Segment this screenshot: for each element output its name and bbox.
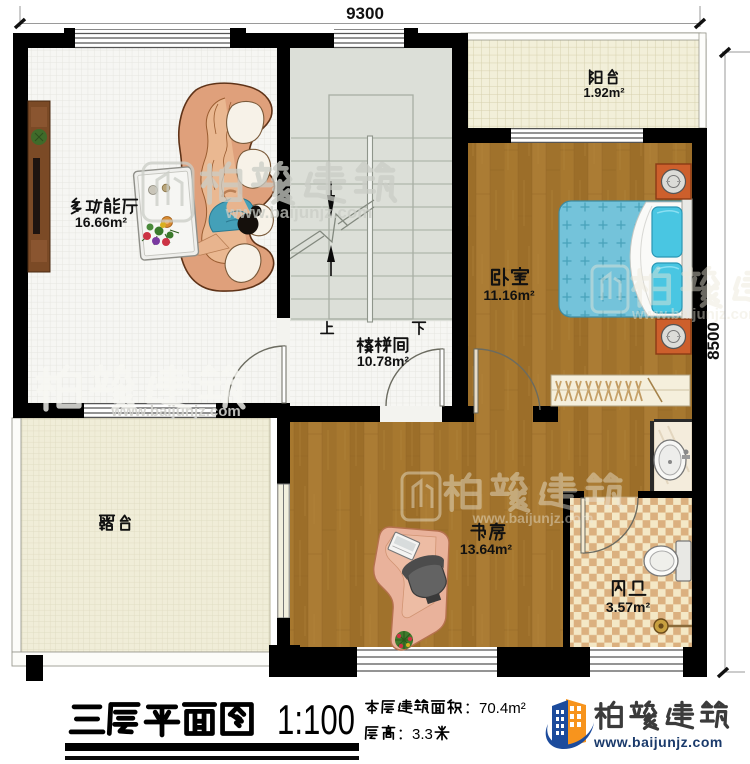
svg-text:11.16m²: 11.16m² xyxy=(483,287,535,303)
svg-text:：3.3: ：3.3 xyxy=(397,726,433,743)
svg-text:www.baijunjz.com: www.baijunjz.com xyxy=(110,403,240,420)
svg-text:3.57m²: 3.57m² xyxy=(606,599,651,615)
svg-text:8500: 8500 xyxy=(704,322,723,360)
svg-text:13.64m²: 13.64m² xyxy=(460,541,512,557)
svg-text:www.baijunjz.com: www.baijunjz.com xyxy=(225,203,373,222)
svg-text:1.92m²: 1.92m² xyxy=(583,85,625,100)
svg-text:www.baijunjz.com: www.baijunjz.com xyxy=(631,306,750,323)
svg-text:www.baijunjz.com: www.baijunjz.com xyxy=(472,510,594,526)
svg-text:9300: 9300 xyxy=(346,4,384,23)
svg-text:www.baijunjz.com: www.baijunjz.com xyxy=(593,734,723,750)
svg-text:1:100: 1:100 xyxy=(277,696,355,743)
svg-text:16.66m²: 16.66m² xyxy=(75,214,127,230)
svg-text:：70.4m²: ：70.4m² xyxy=(464,700,526,717)
svg-text:10.78m²: 10.78m² xyxy=(357,353,409,369)
